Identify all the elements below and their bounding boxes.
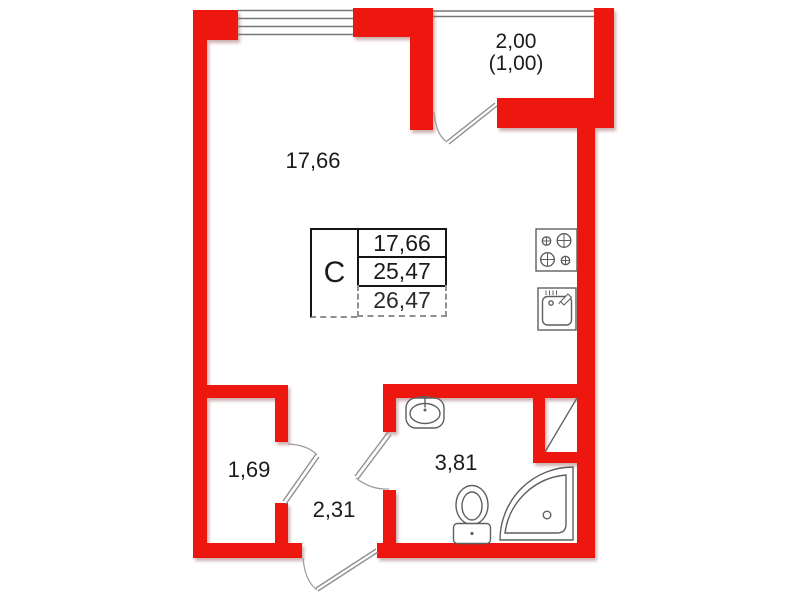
- floor-plan: 17,66 2,00 (1,00) 1,69 2,31 3,81 С 17,66…: [0, 0, 800, 600]
- door-icon-bathroom: [355, 432, 391, 489]
- stove-icon: [536, 229, 577, 271]
- washbasin-icon: [406, 396, 444, 428]
- window-icon: [238, 11, 353, 35]
- room-label-closet: 1,69: [228, 457, 271, 483]
- toilet-icon: [454, 486, 491, 544]
- area-table: С 17,66 25,47 26,47: [310, 228, 447, 318]
- balcony-area: 2,00: [489, 31, 544, 53]
- area-table-total-with-balcony: 26,47: [357, 285, 447, 317]
- area-table-total-area: 25,47: [357, 256, 447, 287]
- room-label-hallway: 2,31: [313, 497, 356, 523]
- area-table-type: С: [310, 228, 357, 318]
- room-label-living: 17,66: [285, 148, 340, 174]
- vent-shaft-icon: [545, 398, 577, 452]
- door-icon-closet: [283, 444, 319, 504]
- area-table-living-area: 17,66: [357, 228, 447, 258]
- shower-cabin-icon: [500, 467, 573, 540]
- balcony-glazing-icon: [433, 11, 594, 17]
- door-icon-balcony: [434, 103, 497, 144]
- balcony-area-reduced: (1,00): [489, 53, 544, 75]
- kitchen-sink-icon: [538, 288, 576, 330]
- room-label-balcony: 2,00 (1,00): [489, 31, 544, 75]
- door-icon-entrance: [303, 549, 378, 591]
- room-label-bathroom: 3,81: [435, 450, 478, 476]
